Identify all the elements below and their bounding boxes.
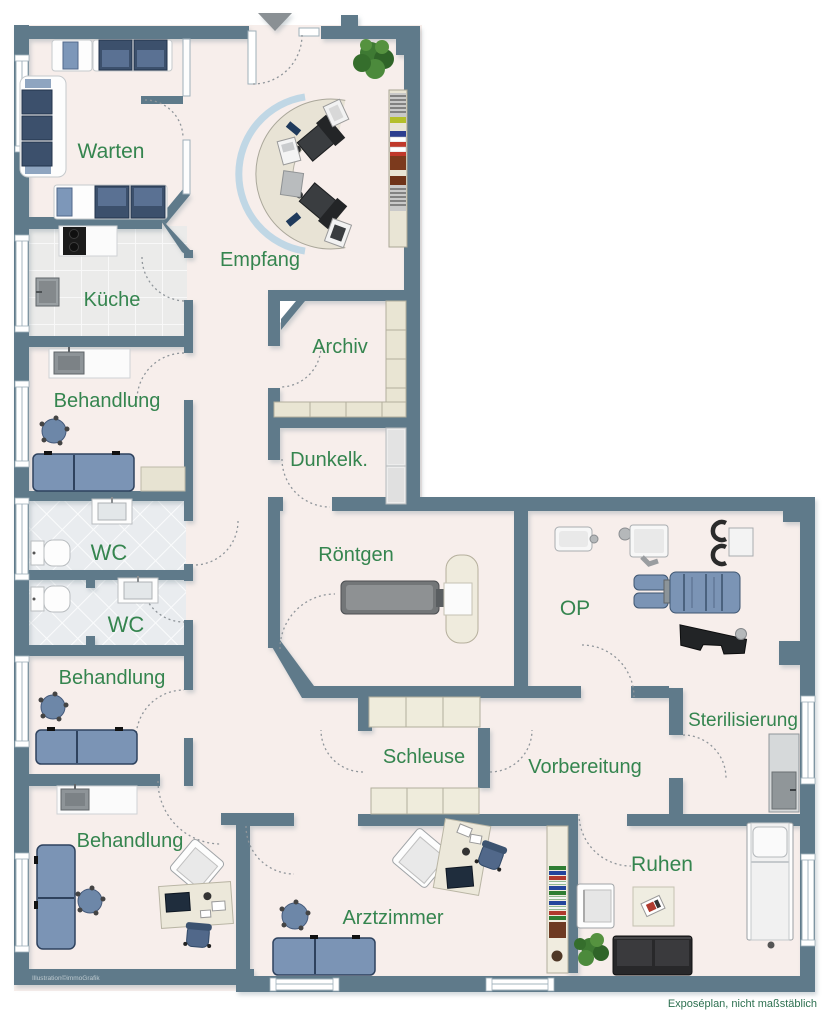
svg-text:Archiv: Archiv	[312, 336, 368, 358]
svg-text:WC: WC	[108, 612, 145, 637]
svg-text:OP: OP	[560, 597, 590, 620]
svg-text:Vorbereitung: Vorbereitung	[528, 756, 641, 778]
svg-text:WC: WC	[91, 540, 128, 565]
svg-text:Dunkelk.: Dunkelk.	[290, 449, 368, 471]
svg-text:Schleuse: Schleuse	[383, 746, 465, 768]
svg-text:Behandlung: Behandlung	[54, 390, 161, 412]
svg-text:Exposéplan, nicht maßstäblich: Exposéplan, nicht maßstäblich	[668, 998, 817, 1010]
svg-text:Röntgen: Röntgen	[318, 544, 394, 566]
svg-text:Arztzimmer: Arztzimmer	[342, 907, 443, 929]
svg-text:Küche: Küche	[84, 289, 141, 311]
svg-text:Behandlung: Behandlung	[77, 830, 184, 852]
svg-text:Empfang: Empfang	[220, 249, 300, 271]
svg-text:Warten: Warten	[78, 140, 145, 163]
svg-text:Ruhen: Ruhen	[631, 853, 693, 876]
svg-text:Illustration©immoGrafik: Illustration©immoGrafik	[32, 974, 100, 982]
svg-text:Behandlung: Behandlung	[59, 667, 166, 689]
svg-text:Sterilisierung: Sterilisierung	[688, 710, 798, 731]
